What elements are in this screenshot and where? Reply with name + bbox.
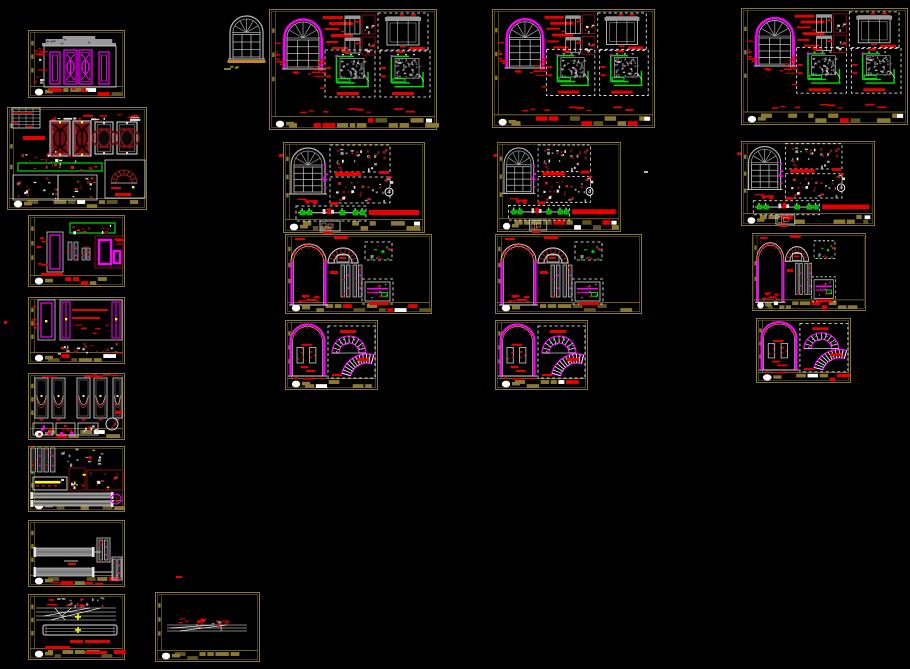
redbar-feature: [72, 309, 108, 311]
redbar-feature: [785, 197, 793, 200]
redbar-feature: [379, 171, 389, 174]
redbar-feature: [111, 187, 121, 189]
redbar-feature: [41, 273, 63, 276]
redbar-feature: [330, 202, 338, 205]
redbar-feature: [628, 46, 644, 49]
redbar-feature: [794, 255, 799, 257]
redbar-feature: [494, 154, 497, 157]
redbar-feature: [70, 640, 83, 643]
redbar-feature: [329, 22, 353, 25]
door-feature: [115, 122, 139, 154]
redbar-feature: [279, 154, 283, 157]
redbar-feature: [787, 269, 793, 272]
redbar-feature: [326, 41, 338, 43]
svg-text:4: 4: [588, 189, 591, 195]
redbar-feature: [325, 28, 339, 30]
redbar-loose: [176, 576, 182, 578]
redbar-feature: [812, 327, 828, 330]
redbar-feature: [760, 237, 768, 239]
redbar-feature: [737, 152, 741, 155]
redbar-feature: [339, 257, 346, 259]
redbar-feature: [544, 16, 563, 19]
redbar-feature: [567, 358, 579, 361]
redbar-feature: [295, 238, 305, 240]
door-feature: [93, 122, 116, 154]
redbar-feature: [822, 205, 869, 210]
redbar-feature: [540, 271, 548, 274]
redbar-feature: [334, 236, 348, 239]
redbar-feature: [558, 91, 579, 94]
redbar-feature: [803, 32, 825, 35]
redbar-feature: [832, 168, 841, 171]
redbar-feature: [505, 238, 515, 240]
dot-feature: [132, 186, 134, 188]
rect-loose: [644, 171, 648, 173]
redbar-feature: [538, 201, 545, 204]
redbar-feature: [392, 92, 414, 95]
svg-text:4: 4: [839, 186, 842, 192]
redbar-feature: [331, 34, 353, 37]
redbar-feature: [115, 193, 131, 196]
redbar-loose: [4, 321, 7, 324]
redbar-feature: [337, 92, 359, 95]
door-feature: [50, 121, 70, 156]
redbar-feature: [553, 46, 569, 48]
redbar-feature: [85, 651, 107, 654]
redbar-feature: [332, 374, 342, 376]
redbar-feature: [801, 21, 825, 24]
redbar-feature: [552, 34, 573, 37]
redbar-feature: [795, 15, 815, 18]
dot-feature: [65, 318, 67, 320]
redbar-feature: [550, 22, 573, 25]
redbar-feature: [572, 209, 616, 214]
redbar-feature: [790, 235, 801, 238]
redbar-feature: [23, 136, 45, 140]
redbar-feature: [544, 236, 558, 239]
beam-feature: [34, 547, 95, 557]
redbar-feature: [830, 353, 842, 356]
beam-feature: [31, 500, 114, 507]
redbar-feature: [790, 169, 815, 173]
redbar-feature: [330, 271, 338, 274]
redbar-feature: [817, 299, 833, 302]
redbar-feature: [357, 358, 369, 361]
redbar-feature: [880, 45, 896, 48]
redbar-feature: [547, 40, 559, 42]
redbar-feature: [863, 88, 885, 91]
redbar-feature: [579, 302, 599, 305]
redbar-feature: [332, 47, 348, 49]
door-feature: [73, 121, 91, 156]
redbar-feature: [542, 172, 565, 176]
redbar-feature: [369, 210, 419, 215]
dot-feature: [115, 318, 117, 320]
redbar-feature: [68, 563, 76, 565]
redbar-feature: [340, 330, 356, 333]
redbar-feature: [550, 330, 566, 333]
redbar-feature: [409, 47, 425, 50]
cad-viewport: 444: [0, 0, 910, 669]
redbar-feature: [611, 91, 632, 94]
redbar-feature: [809, 88, 831, 91]
redbar-feature: [85, 640, 110, 643]
redbar-feature: [335, 172, 361, 176]
redbar-feature: [804, 368, 814, 370]
redbar-feature: [542, 374, 552, 376]
redbar-feature: [804, 45, 820, 47]
redbar-feature: [546, 28, 560, 30]
redbar-feature: [369, 302, 389, 305]
redbar-feature: [581, 171, 590, 174]
rect-loose: [224, 68, 231, 70]
redbar-feature: [45, 646, 70, 649]
cad-canvas[interactable]: 444: [0, 0, 910, 669]
redbar-feature: [323, 16, 343, 19]
redbar-feature: [549, 257, 556, 259]
redbar-feature: [797, 26, 811, 28]
dot-feature: [45, 320, 47, 322]
redbar-feature: [72, 317, 100, 319]
beam-feature: [34, 567, 95, 577]
redbar-feature: [115, 411, 122, 414]
beam-feature: [31, 492, 114, 499]
redbar-feature: [798, 39, 810, 41]
